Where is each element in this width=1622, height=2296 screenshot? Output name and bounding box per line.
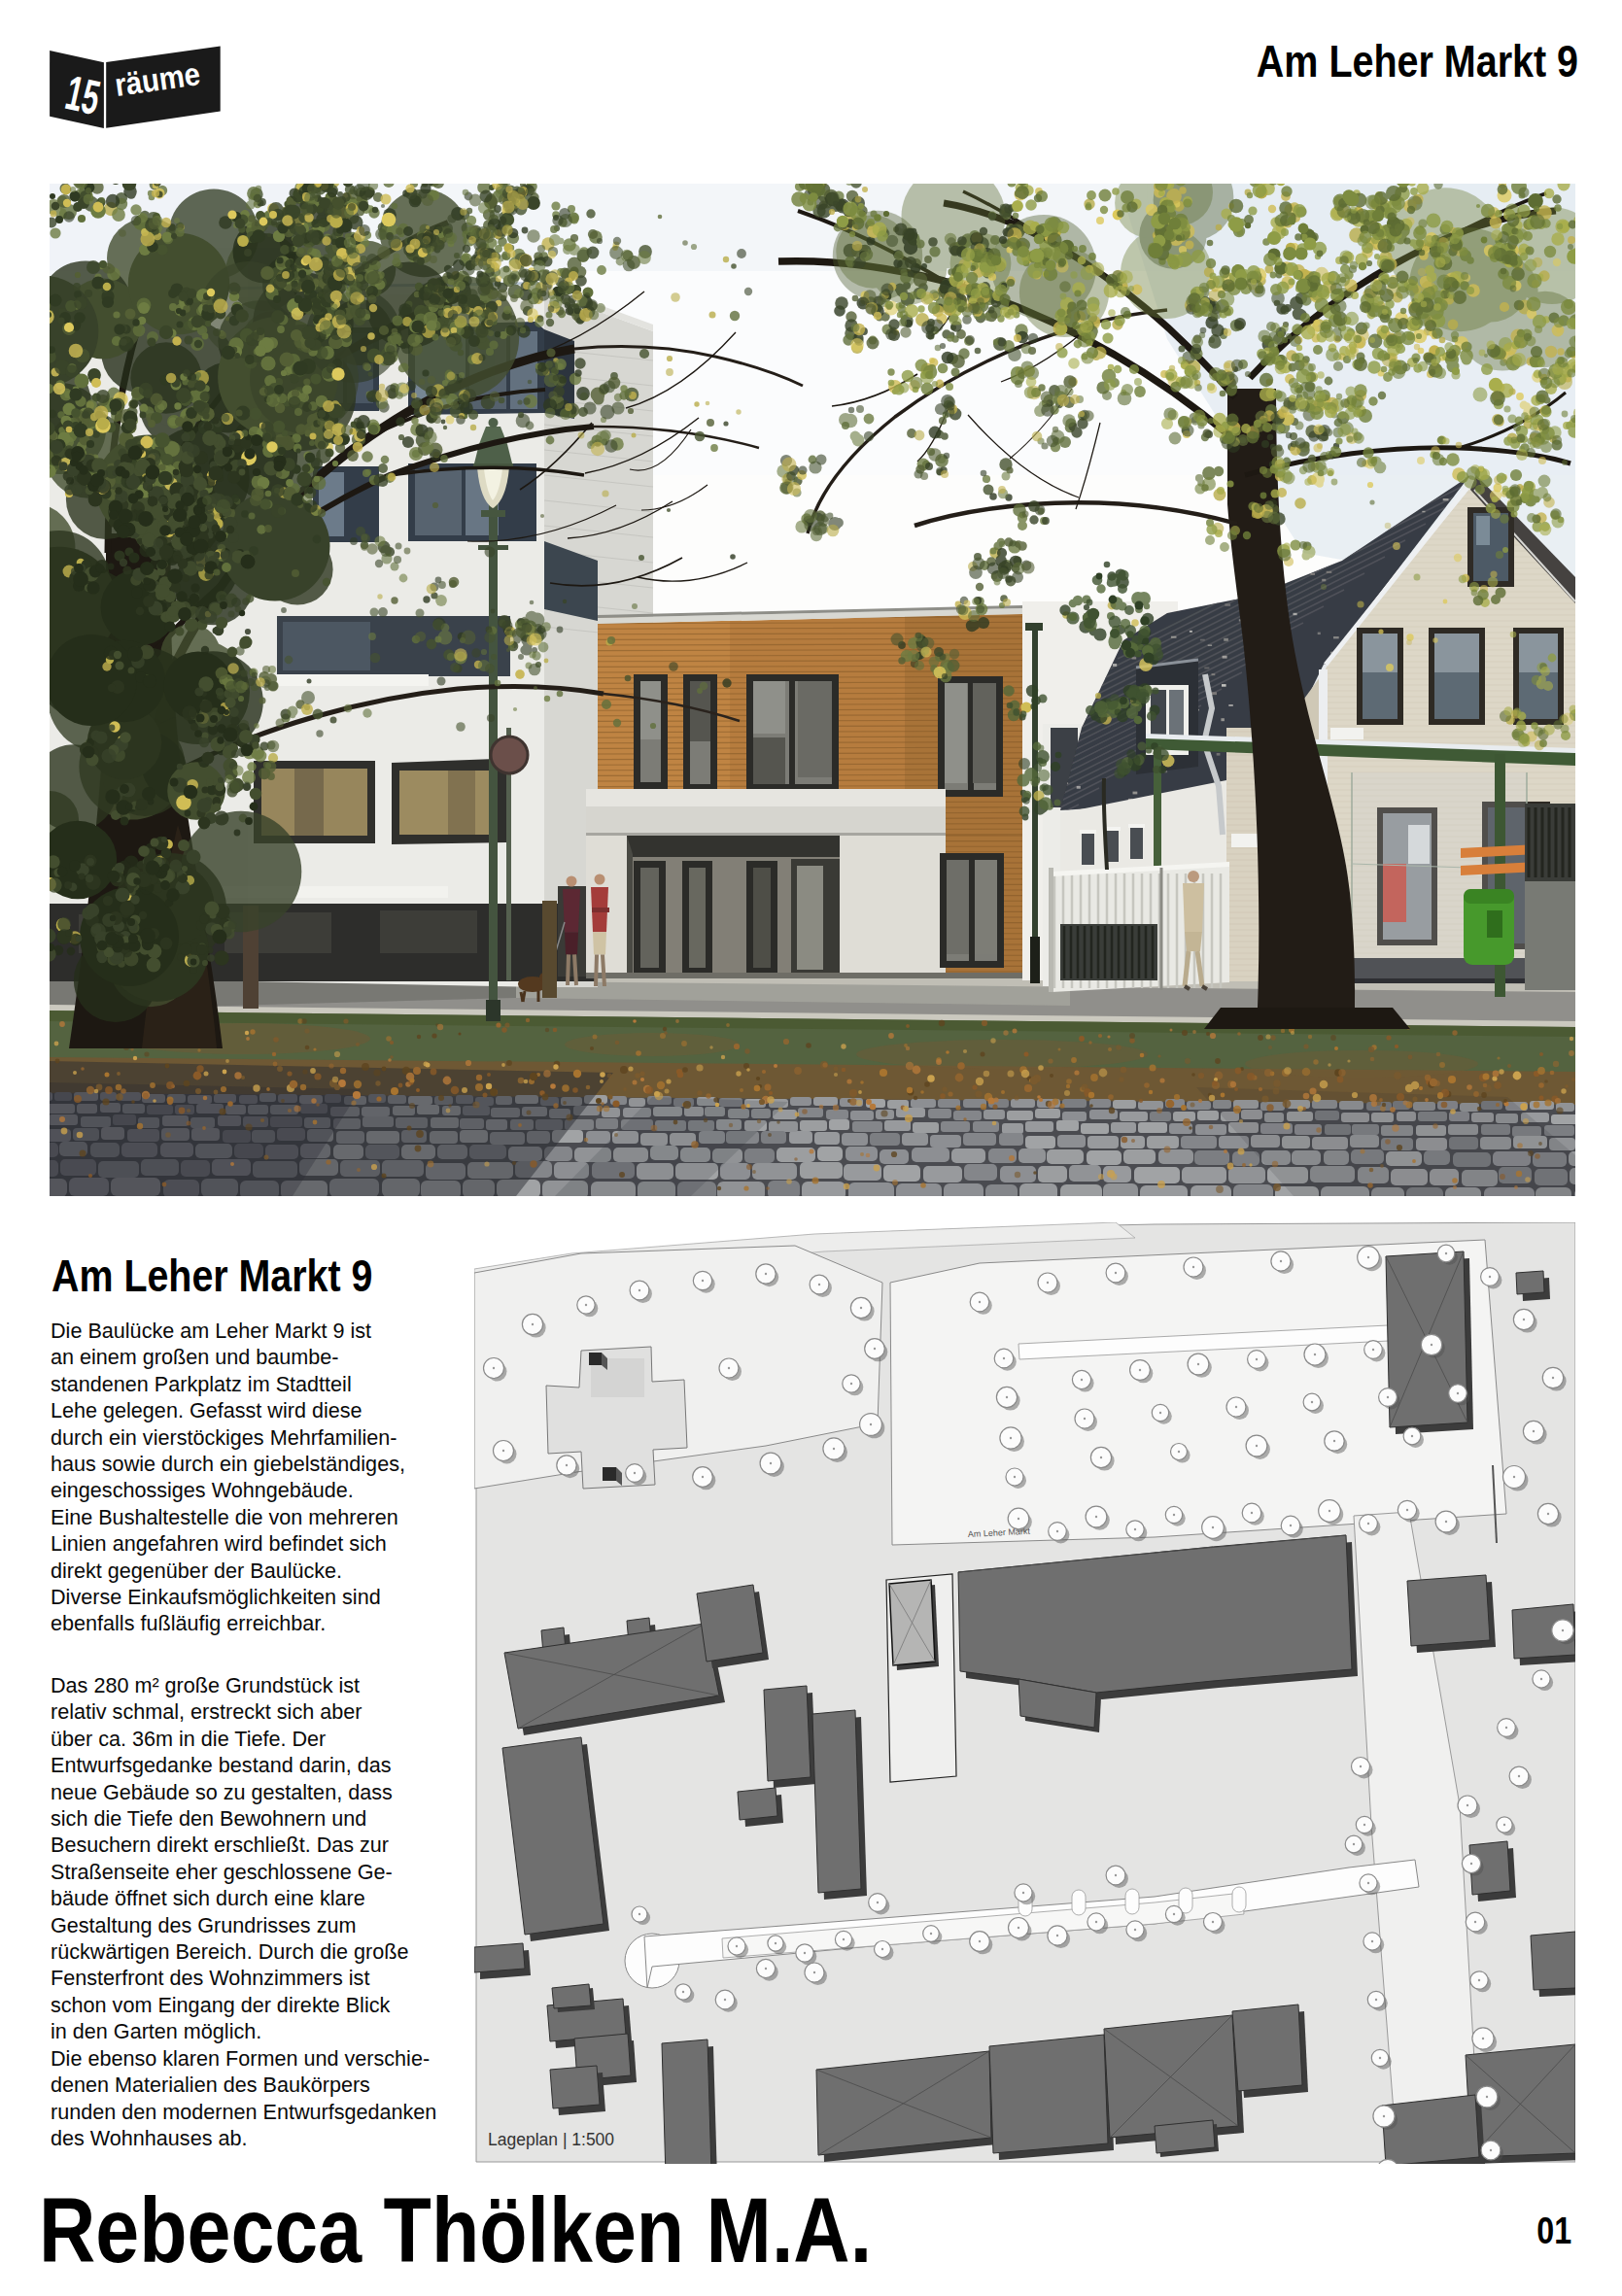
svg-text:Lageplan | 1:500: Lageplan | 1:500 <box>488 2130 614 2149</box>
